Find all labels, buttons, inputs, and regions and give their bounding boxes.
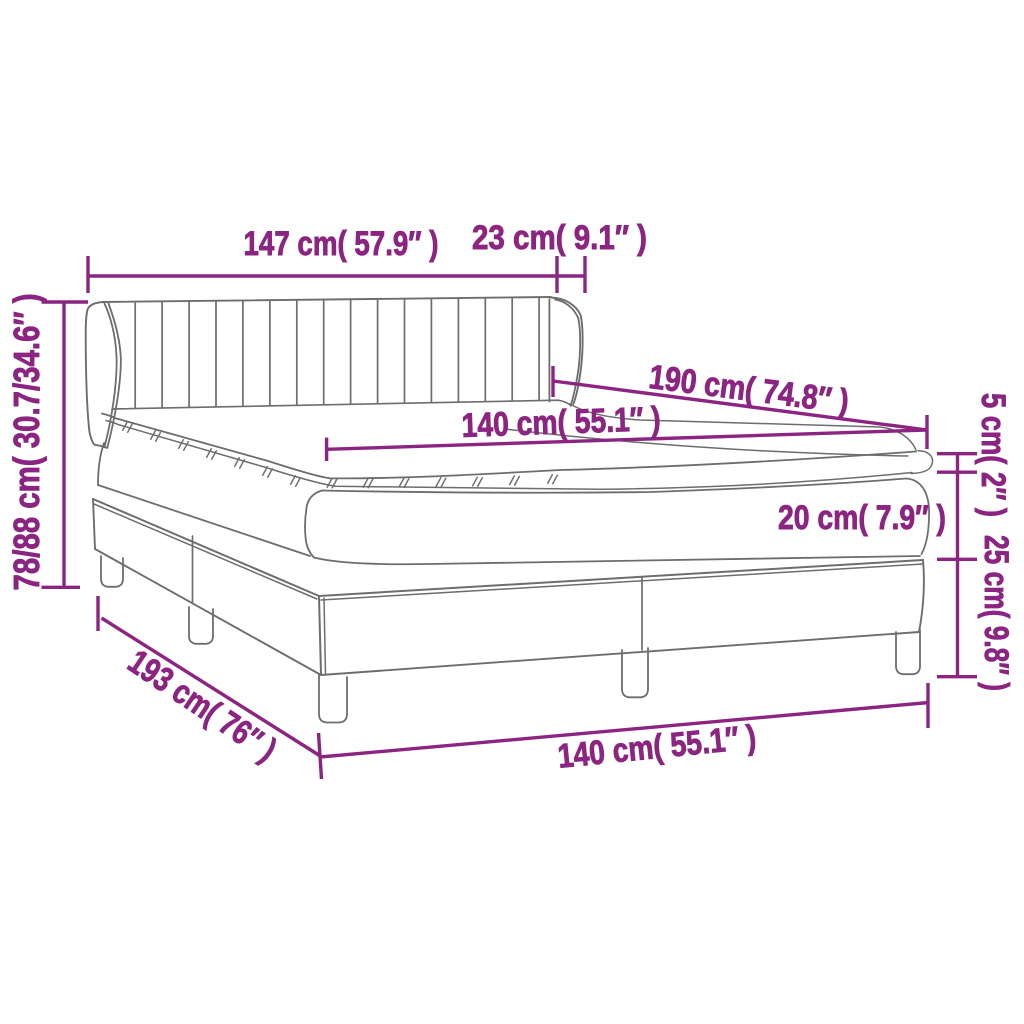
svg-text:23 cm( 9.1″ ): 23 cm( 9.1″ ) — [472, 219, 647, 257]
svg-text:25 cm( 9.8″ ): 25 cm( 9.8″ ) — [977, 535, 1015, 691]
svg-text:140 cm( 55.1″ ): 140 cm( 55.1″ ) — [461, 400, 661, 445]
svg-text:147 cm( 57.9″ ): 147 cm( 57.9″ ) — [244, 225, 439, 263]
svg-text:20 cm( 7.9″ ): 20 cm( 7.9″ ) — [778, 499, 946, 537]
svg-text:5 cm( 2″ ): 5 cm( 2″ ) — [974, 393, 1012, 517]
svg-text:78/88 cm( 30.7/34.6″ ): 78/88 cm( 30.7/34.6″ ) — [6, 294, 47, 591]
